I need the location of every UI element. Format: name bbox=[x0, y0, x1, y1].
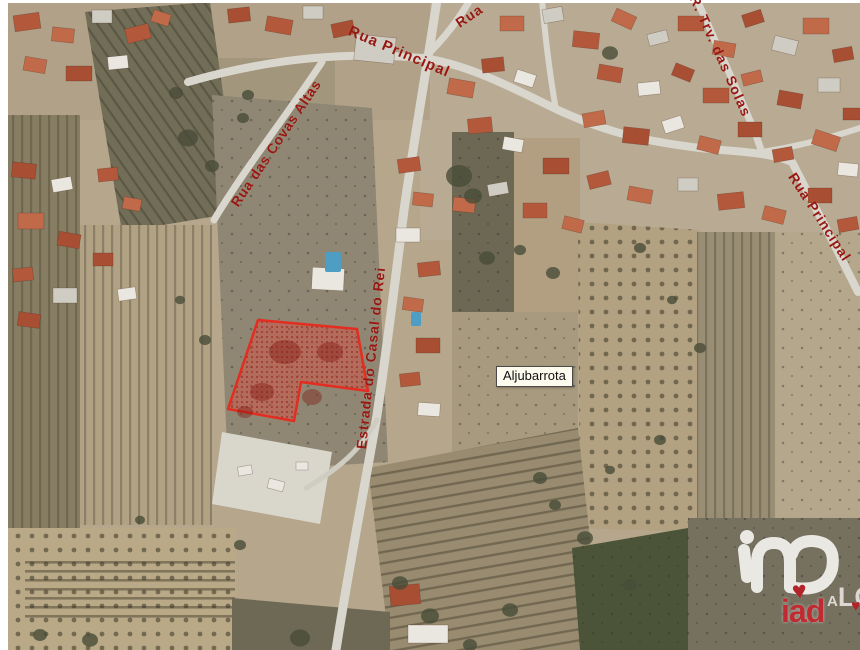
house bbox=[17, 312, 41, 329]
house bbox=[18, 213, 44, 229]
house bbox=[703, 88, 729, 103]
tree bbox=[694, 343, 706, 353]
tree bbox=[175, 296, 185, 305]
tree bbox=[654, 435, 666, 445]
aerial-map: Rua Principal Rua Rua das Covas Altas Es… bbox=[0, 0, 860, 650]
house bbox=[542, 6, 564, 23]
house bbox=[418, 402, 441, 417]
house bbox=[13, 12, 41, 31]
house bbox=[303, 6, 323, 19]
tree bbox=[479, 251, 495, 265]
house bbox=[227, 7, 250, 23]
house bbox=[622, 127, 650, 146]
house bbox=[678, 178, 698, 191]
tree bbox=[623, 579, 637, 591]
tree bbox=[667, 296, 677, 305]
tree bbox=[234, 540, 246, 550]
tree bbox=[82, 633, 98, 647]
tree bbox=[533, 472, 547, 484]
map-left-margin bbox=[0, 0, 8, 650]
house bbox=[97, 167, 118, 182]
house bbox=[397, 157, 421, 174]
house bbox=[818, 78, 840, 92]
house bbox=[523, 203, 547, 218]
tree bbox=[178, 130, 198, 147]
tree bbox=[446, 165, 472, 187]
place-label-aljubarrota: Aljubarrota bbox=[496, 366, 573, 387]
house bbox=[107, 55, 128, 70]
house bbox=[93, 253, 113, 266]
house bbox=[11, 162, 36, 179]
tree bbox=[242, 90, 254, 100]
tree bbox=[602, 46, 618, 60]
house bbox=[637, 81, 660, 96]
tree bbox=[392, 576, 408, 590]
house bbox=[66, 66, 92, 81]
house bbox=[843, 108, 860, 120]
house bbox=[416, 338, 440, 353]
house bbox=[51, 27, 74, 43]
tree bbox=[514, 245, 526, 255]
house bbox=[500, 16, 524, 31]
tree bbox=[502, 603, 518, 617]
house bbox=[408, 625, 448, 643]
house bbox=[467, 117, 492, 134]
tree bbox=[577, 531, 593, 545]
house bbox=[417, 261, 440, 277]
tree bbox=[464, 188, 482, 203]
logo-i-dot bbox=[744, 534, 751, 541]
house bbox=[296, 462, 308, 470]
tree bbox=[634, 243, 646, 253]
house bbox=[412, 192, 433, 207]
map-top-margin bbox=[0, 0, 860, 3]
partial-heart-icon: ♥ bbox=[851, 599, 860, 615]
house bbox=[396, 228, 420, 242]
tree bbox=[169, 87, 183, 99]
logo-a-arch bbox=[757, 543, 790, 587]
house bbox=[12, 267, 33, 282]
tree bbox=[549, 500, 561, 510]
house bbox=[837, 162, 858, 177]
tree bbox=[199, 335, 211, 345]
house bbox=[53, 288, 77, 303]
pool bbox=[411, 312, 421, 326]
tree bbox=[546, 267, 560, 279]
house bbox=[572, 31, 600, 50]
iad-logo-text: iad bbox=[781, 595, 824, 627]
house bbox=[117, 287, 136, 301]
house bbox=[402, 297, 424, 313]
house bbox=[481, 57, 504, 73]
tree bbox=[237, 113, 249, 123]
tree bbox=[33, 629, 47, 641]
house bbox=[543, 158, 569, 174]
tree bbox=[605, 466, 615, 475]
house bbox=[92, 10, 112, 23]
tree bbox=[421, 608, 439, 623]
logo-i-stem bbox=[744, 550, 747, 577]
tree bbox=[135, 516, 145, 525]
tree bbox=[290, 630, 310, 647]
house bbox=[738, 122, 762, 137]
pool bbox=[325, 252, 341, 272]
house bbox=[399, 372, 420, 387]
house bbox=[717, 192, 745, 211]
tree bbox=[205, 160, 219, 172]
house bbox=[803, 18, 829, 34]
